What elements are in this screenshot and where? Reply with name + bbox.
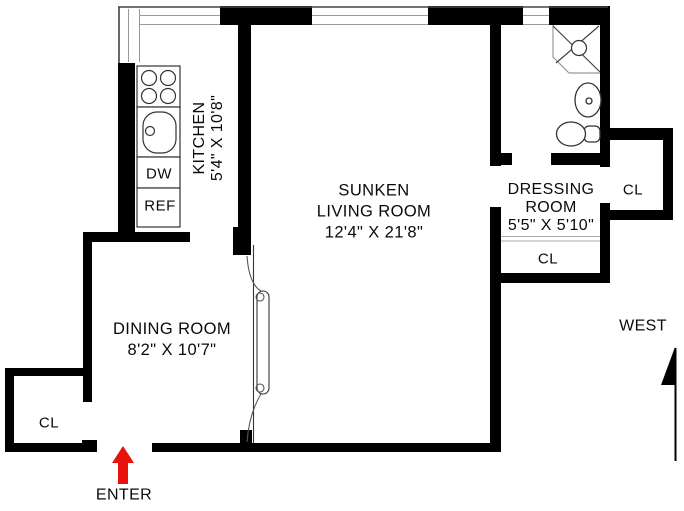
dressing-room-name-line1: DRESSING: [508, 181, 595, 199]
enter-label: ENTER: [96, 485, 152, 506]
shower-icon: [553, 25, 600, 73]
window-bathroom: [523, 16, 549, 25]
closet-label-entry: CL: [39, 413, 59, 434]
dining-room-label: DINING ROOM 8'2" X 10'7": [113, 319, 231, 361]
window-living: [312, 16, 428, 25]
dressing-room-dims: 5'5" X 5'10": [508, 217, 595, 235]
dressing-room-name-line2: ROOM: [508, 199, 595, 217]
toilet-icon: [557, 122, 601, 146]
closet-label-dressing: CL: [538, 249, 558, 270]
enter-arrow-icon: [112, 446, 134, 484]
window-band: [118, 7, 608, 63]
dining-room-dims: 8'2" X 10'7": [113, 340, 231, 361]
west-label: WEST: [619, 316, 667, 337]
living-room-dims: 12'4" X 21'8": [317, 223, 431, 244]
kitchen-dims: 5'4" X 10'8": [209, 95, 227, 181]
dishwasher-label: DW: [146, 164, 172, 185]
french-doors-icon: [247, 245, 269, 443]
kitchen-sink-icon: [137, 107, 180, 157]
window-kitchen: [140, 16, 220, 25]
closet-slider-lines: [501, 237, 600, 242]
west-arrow-icon: [661, 347, 676, 461]
floor-plan: KITCHEN 5'4" X 10'8" SUNKEN LIVING ROOM …: [0, 0, 684, 511]
refrigerator-label: REF: [144, 196, 176, 217]
dressing-room-label: DRESSING ROOM 5'5" X 5'10": [508, 181, 595, 235]
living-room-name-line2: LIVING ROOM: [317, 202, 431, 223]
kitchen-name: KITCHEN: [191, 95, 209, 181]
kitchen-label: KITCHEN 5'4" X 10'8": [191, 95, 227, 181]
fixtures-overlay: [0, 0, 684, 511]
living-room-label: SUNKEN LIVING ROOM 12'4" X 21'8": [317, 181, 431, 244]
living-room-name-line1: SUNKEN: [317, 181, 431, 202]
corner-window: [129, 9, 140, 62]
dining-room-name: DINING ROOM: [113, 319, 231, 340]
closet-label-east: CL: [623, 180, 643, 201]
stove-icon: [137, 66, 180, 107]
bathroom-sink-icon: [575, 83, 601, 117]
